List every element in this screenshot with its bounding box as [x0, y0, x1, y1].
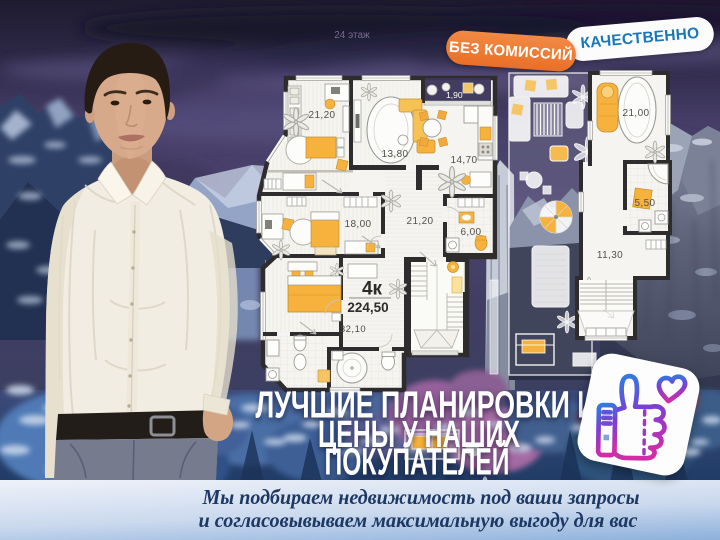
svg-text:ПОКУПАТЕЛЕЙ: ПОКУПАТЕЛЕЙ	[325, 439, 510, 484]
svg-text:и согласовывываем максимальную: и согласовывываем максимальную выгоду дл…	[199, 508, 639, 532]
svg-text:Мы подбираем недвижимость под: Мы подбираем недвижимость под ваши запро…	[202, 485, 640, 509]
